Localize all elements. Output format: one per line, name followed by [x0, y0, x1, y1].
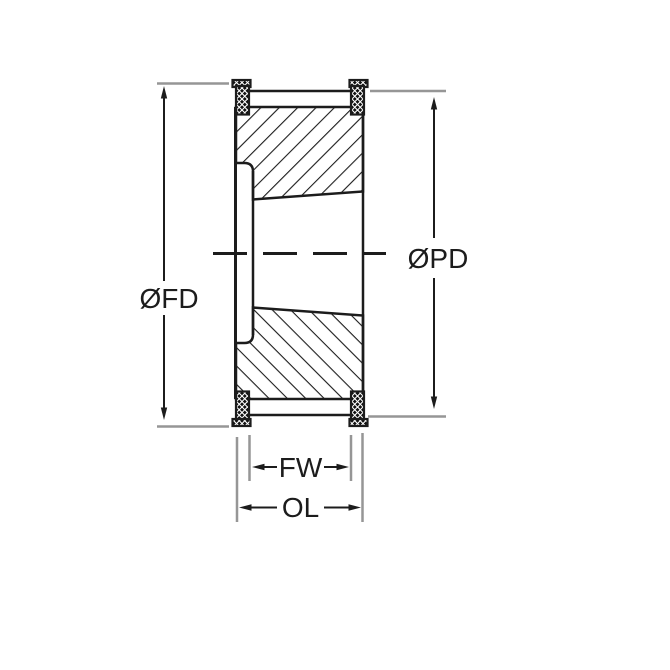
upper-body-section — [236, 107, 363, 200]
ol-arrow-right-icon — [349, 504, 362, 510]
fw-dimension: FW — [250, 435, 352, 483]
overall-length-label: OL — [282, 492, 319, 523]
flange-bottom-left — [233, 392, 251, 427]
fd-arrow-down-icon — [161, 408, 167, 421]
flange-diameter-label: ØFD — [139, 283, 198, 314]
flange-top-right — [350, 80, 368, 115]
flange-bottom-right-cap — [350, 419, 368, 426]
flange-bottom-left-cap — [233, 419, 251, 426]
fw-arrow-right-icon — [337, 464, 350, 470]
fw-arrow-left-icon — [252, 464, 265, 470]
flange-bottom-right — [350, 392, 368, 427]
drawing-canvas: ØFD ØPD FW — [0, 0, 670, 670]
pitch-diameter-label: ØPD — [408, 243, 469, 274]
ol-arrow-left-icon — [239, 504, 252, 510]
flange-top-right-bar — [351, 86, 364, 115]
lower-body-section — [236, 308, 363, 400]
pulley-cross-section-drawing: ØFD ØPD FW — [0, 0, 670, 670]
flange-bottom-left-bar — [236, 392, 249, 421]
flange-bottom-right-bar — [351, 392, 364, 421]
pd-arrow-down-icon — [431, 397, 437, 410]
flange-top-left — [233, 80, 251, 115]
face-width-label: FW — [279, 452, 323, 483]
flange-top-left-bar — [236, 86, 249, 115]
